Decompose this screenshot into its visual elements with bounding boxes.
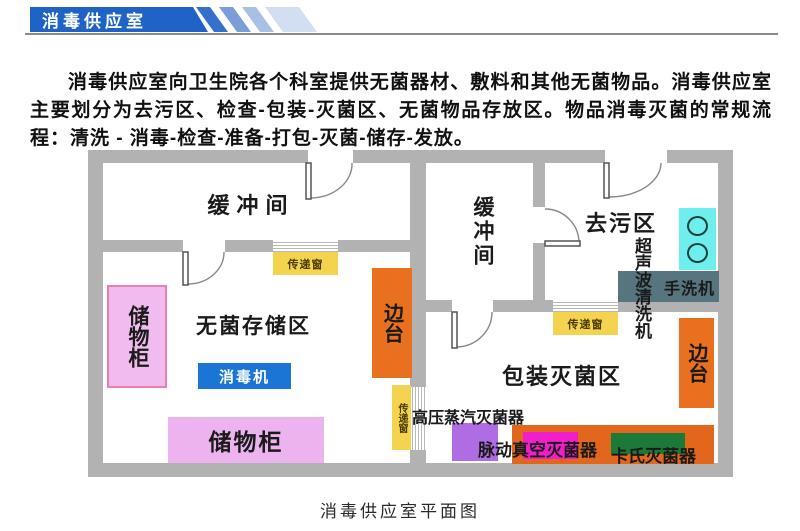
wall-right-divider-a: [426, 300, 452, 312]
wall-decon-vertical-a: [533, 163, 545, 207]
pass-window-glazing-1: [273, 240, 338, 252]
pass-window-label-2: 传递窗: [392, 385, 411, 450]
header-banner: 消毒供应室: [30, 7, 208, 32]
room-label-sterile-storage: 无菌存储区: [196, 310, 311, 340]
wall-top-middle: [353, 150, 605, 163]
door-arc-decon-top: [609, 163, 661, 197]
pass-window-label-3: 传递窗: [553, 312, 618, 335]
cassette-sterilizer-label: 卡氏灭菌器: [611, 442, 696, 467]
room-label-packaging-sterilization: 包装灭菌区: [502, 359, 622, 391]
wall-left-divider-a: [103, 240, 183, 252]
door-leaf-storage: [183, 252, 188, 285]
cabinet-bottom: 储物柜: [168, 417, 324, 463]
header-divider-line: [25, 33, 778, 35]
page-title: 消毒供应室: [30, 7, 147, 32]
ultrasonic-cleaner-label: 超声波清洗机: [626, 237, 650, 353]
room-label-decontamination: 去污区: [585, 206, 657, 238]
wall-decon-vertical-b: [533, 243, 545, 300]
room-label-buffer-right: 缓冲间: [467, 196, 497, 306]
wall-left-divider-b: [225, 240, 273, 252]
door-arc-buffer-right-side: [545, 209, 579, 243]
pulse-vacuum-sterilizer-label: 脉动真空灭菌器: [478, 436, 597, 461]
door-leaf-decon-top: [604, 163, 609, 198]
room-label-buffer-left: 缓冲间: [196, 188, 306, 220]
washing-sink: [679, 208, 716, 270]
wall-right-divider-b: [493, 300, 553, 312]
wall-left-divider-c: [338, 240, 410, 252]
door-leaf-buffer-right-side: [545, 241, 580, 246]
disinfector-machine: 消毒机: [198, 363, 291, 389]
sink-basin-top: [687, 216, 708, 236]
autoclave-label: 高压蒸汽灭菌器: [412, 404, 524, 428]
door-leaf-packaging: [452, 312, 457, 348]
door-leaf-buffer-left-top: [306, 163, 311, 199]
wall-middle-upper: [410, 150, 426, 387]
sink-basin-bottom: [687, 243, 708, 263]
side-table-right: 边台: [679, 318, 714, 408]
door-arc-storage: [188, 252, 224, 284]
pass-window-glazing-3: [553, 300, 618, 312]
intro-paragraph: 消毒供应室向卫生院各个科室提供无菌器材、敷料和其他无菌物品。消毒供应室主要划分为…: [30, 69, 772, 153]
side-table-left: 边台: [372, 268, 412, 378]
cabinet-left: 储物柜: [107, 285, 167, 388]
door-arc-packaging: [457, 312, 492, 347]
door-arc-buffer-left-top: [311, 163, 352, 198]
wall-left: [88, 150, 103, 477]
banner-stripe-4: [265, 7, 317, 32]
wall-middle-lower: [410, 450, 426, 477]
pass-window-label-1: 传递窗: [273, 252, 338, 275]
figure-caption: 消毒供应室平面图: [0, 497, 800, 522]
wall-right: [718, 150, 733, 477]
wall-top-left: [88, 150, 308, 163]
